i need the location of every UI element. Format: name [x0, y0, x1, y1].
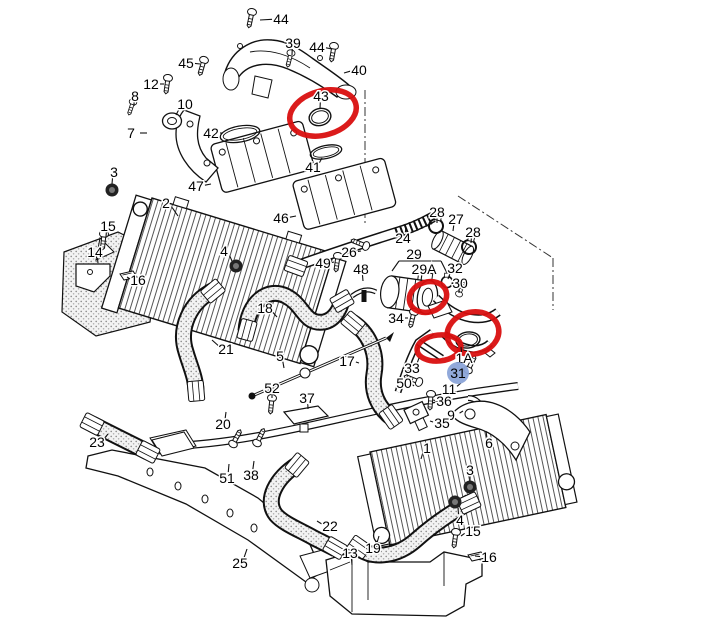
- part-label-37[interactable]: 37: [299, 390, 315, 406]
- part-label-40[interactable]: 40: [351, 62, 367, 78]
- part-label-24[interactable]: 24: [395, 230, 411, 246]
- part-label-46[interactable]: 46: [273, 210, 289, 226]
- part-label-7[interactable]: 7: [127, 125, 135, 141]
- part-label-42[interactable]: 42: [203, 125, 219, 141]
- part-label-50[interactable]: 50: [396, 375, 412, 391]
- part-label-28[interactable]: 28: [465, 224, 481, 240]
- part-label-11[interactable]: 11: [442, 381, 457, 397]
- part-label-6[interactable]: 6: [485, 435, 493, 451]
- part-label-33[interactable]: 33: [404, 360, 420, 376]
- parts-diagram-page: 4439444045128107424341473215141644626242…: [0, 0, 720, 622]
- part-label-14[interactable]: 14: [87, 244, 103, 260]
- part-label-17[interactable]: 17: [339, 353, 355, 369]
- part-label-15[interactable]: 15: [100, 218, 116, 234]
- part-label-16[interactable]: 16: [130, 272, 146, 288]
- leader-line: [127, 277, 129, 278]
- part-label-35[interactable]: 35: [434, 415, 450, 431]
- part-label-38[interactable]: 38: [243, 467, 259, 483]
- leader-line: [290, 216, 296, 217]
- leader-line: [413, 385, 414, 386]
- part-label-20[interactable]: 20: [215, 416, 231, 432]
- part-label-23[interactable]: 23: [89, 434, 105, 450]
- leader-line: [230, 256, 232, 261]
- leader-lines-group: [97, 19, 486, 565]
- part-label-43[interactable]: 43: [313, 88, 329, 104]
- part-label-41[interactable]: 41: [305, 159, 321, 175]
- part-label-2[interactable]: 2: [162, 195, 170, 211]
- part-label-3[interactable]: 3: [110, 164, 118, 180]
- part-label-51[interactable]: 51: [219, 470, 235, 486]
- part-label-4[interactable]: 4: [220, 243, 228, 259]
- part-label-10[interactable]: 10: [177, 96, 193, 112]
- part-label-26[interactable]: 26: [341, 244, 357, 260]
- part-label-19[interactable]: 19: [365, 540, 381, 556]
- part-label-49[interactable]: 49: [315, 255, 331, 271]
- part-label-29[interactable]: 29: [406, 246, 422, 262]
- part-label-34[interactable]: 34: [388, 310, 404, 326]
- leader-line: [358, 251, 361, 252]
- leader-line: [260, 19, 272, 20]
- leader-line: [356, 362, 359, 363]
- part-label-12[interactable]: 12: [143, 76, 159, 92]
- part-label-27[interactable]: 27: [448, 211, 464, 227]
- part-label-3[interactable]: 3: [466, 462, 474, 478]
- part-label-5[interactable]: 5: [276, 348, 284, 364]
- part-label-30[interactable]: 30: [452, 275, 468, 291]
- leader-line: [272, 312, 277, 317]
- part-label-32[interactable]: 32: [447, 260, 463, 276]
- leader-line: [475, 556, 480, 557]
- leader-line: [104, 434, 108, 438]
- part-label-52[interactable]: 52: [264, 380, 280, 396]
- leader-line: [172, 207, 178, 216]
- part-label-44[interactable]: 44: [309, 39, 325, 55]
- leader-line: [430, 421, 433, 422]
- part-label-47[interactable]: 47: [188, 178, 204, 194]
- part-label-28[interactable]: 28: [429, 204, 445, 220]
- group-bracket-line: [392, 261, 399, 271]
- part-label-22[interactable]: 22: [322, 518, 338, 534]
- red-highlight-ellipse: [443, 307, 503, 359]
- part-label-48[interactable]: 48: [353, 261, 369, 277]
- part-label-1[interactable]: 1: [423, 440, 431, 456]
- part-label-29a[interactable]: 29A: [412, 261, 438, 277]
- part-label-31-selected[interactable]: 31: [450, 365, 466, 381]
- leader-line: [344, 71, 350, 73]
- leader-line: [195, 63, 200, 64]
- annotation-and-label-layer: 4439444045128107424341473215141644626242…: [0, 0, 720, 622]
- leader-line: [205, 184, 211, 185]
- leader-line: [460, 411, 463, 413]
- part-label-21[interactable]: 21: [218, 341, 234, 357]
- part-label-44[interactable]: 44: [273, 11, 289, 27]
- part-label-4[interactable]: 4: [456, 512, 464, 528]
- group-bracket-line: [441, 261, 447, 273]
- part-label-15[interactable]: 15: [465, 523, 481, 539]
- red-highlight-ellipse: [405, 277, 450, 317]
- part-label-25[interactable]: 25: [232, 555, 248, 571]
- leader-line: [326, 48, 332, 49]
- part-labels-group: 4439444045128107424341473215141644626242…: [87, 11, 497, 571]
- part-label-18[interactable]: 18: [257, 300, 273, 316]
- part-label-16[interactable]: 16: [481, 549, 497, 565]
- leader-line: [317, 521, 322, 524]
- leader-line: [461, 533, 465, 536]
- part-label-45[interactable]: 45: [178, 55, 194, 71]
- part-label-8[interactable]: 8: [131, 88, 139, 104]
- part-label-39[interactable]: 39: [285, 35, 301, 51]
- part-label-13[interactable]: 13: [342, 545, 358, 561]
